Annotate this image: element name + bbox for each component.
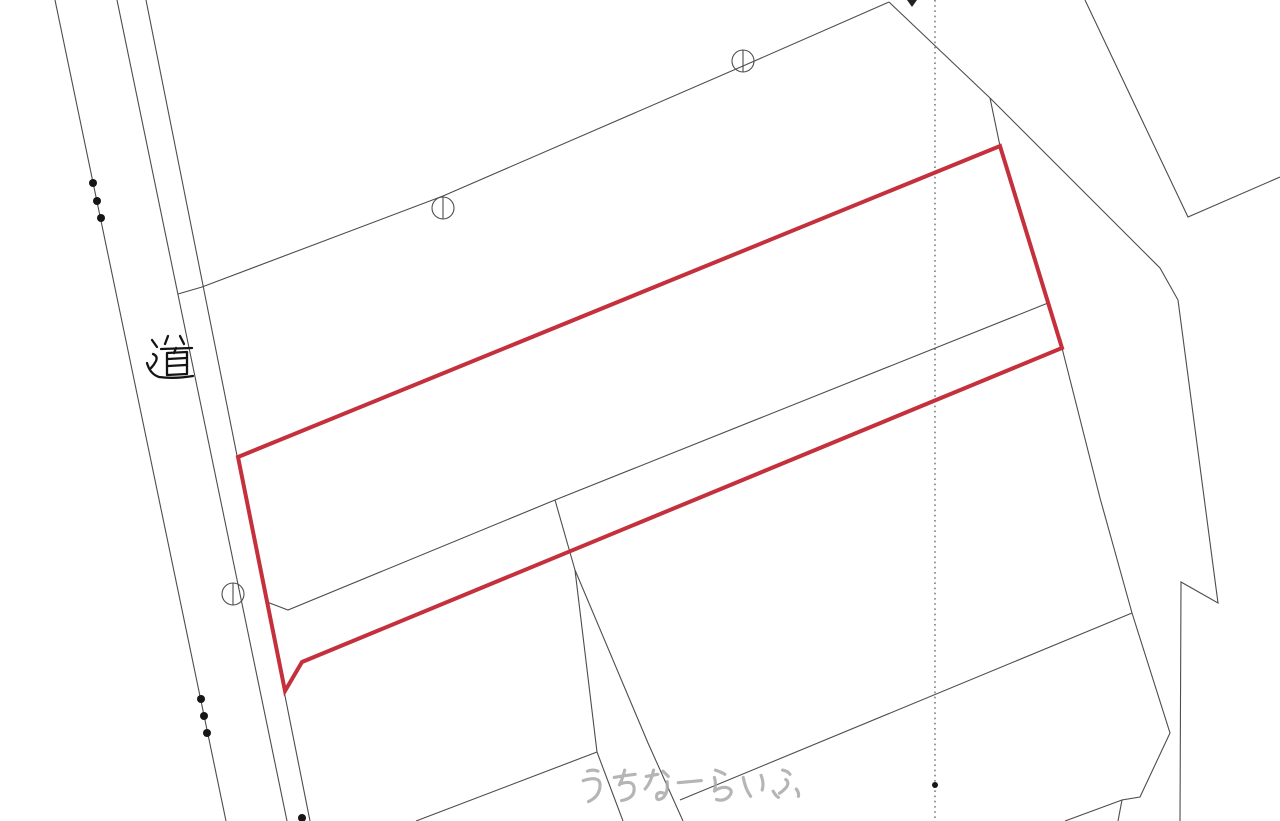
highlighted-parcel-outline [238,146,1062,691]
survey-circle-marker [222,583,244,605]
boundary-point-dot [89,179,97,187]
road-label-stroke [151,354,157,368]
highlighted-parcel-layer [238,146,1062,691]
roadside-parcel-edge [146,0,310,821]
southwest-diagonal-boundary [416,752,597,821]
point-markers-layer [89,179,938,821]
survey-circle-marker [732,50,754,72]
boundary-point-dot [298,814,306,821]
boundary-point-dot [97,214,105,222]
watermark-char-ra [714,770,731,800]
watermark-char-chi [614,770,635,800]
road-label-stroke [152,340,157,347]
southeast-diagonal-boundary [680,613,1132,800]
north-parcel-boundary [178,2,889,294]
watermark-char-u [583,770,600,802]
survey-circle-marker [432,197,454,219]
boundary-point-dot [197,695,205,703]
south-boundary-stem [555,500,575,570]
boundary-point-dot [932,782,938,788]
edge-tick-layer [907,0,917,7]
watermark-glyphs [583,770,798,802]
southeast-parcel-fork [1065,800,1122,821]
parcel-corner-connector [990,98,1000,146]
east-parcel-edge [1062,348,1132,613]
road-label-stroke [167,352,187,375]
inner-parcel-divider [267,303,1048,610]
boundary-point-dot [203,729,211,737]
watermark-char-chouon [678,781,701,783]
cadastral-map: 道 うちなーらいふ [0,0,1280,821]
watermark-char-fu [773,770,798,797]
road-label-glyph [147,336,193,378]
boundary-point-dot [200,712,208,720]
northeast-boundary [889,2,1218,821]
road-label-stroke [168,365,186,366]
map-canvas [0,0,1280,821]
southeast-parcel-edge [1118,613,1170,821]
northeast-notch-boundary [1085,0,1280,217]
road-label-stroke [180,336,184,344]
edge-tick-mark [907,0,917,7]
road-label-stroke [165,336,168,344]
circle-markers-layer [222,50,754,605]
road-label-stroke [168,358,186,359]
watermark-char-na [645,770,668,799]
boundary-point-dot [93,197,101,205]
boundary-lines-layer [55,0,1280,821]
watermark-char-i [743,775,763,796]
